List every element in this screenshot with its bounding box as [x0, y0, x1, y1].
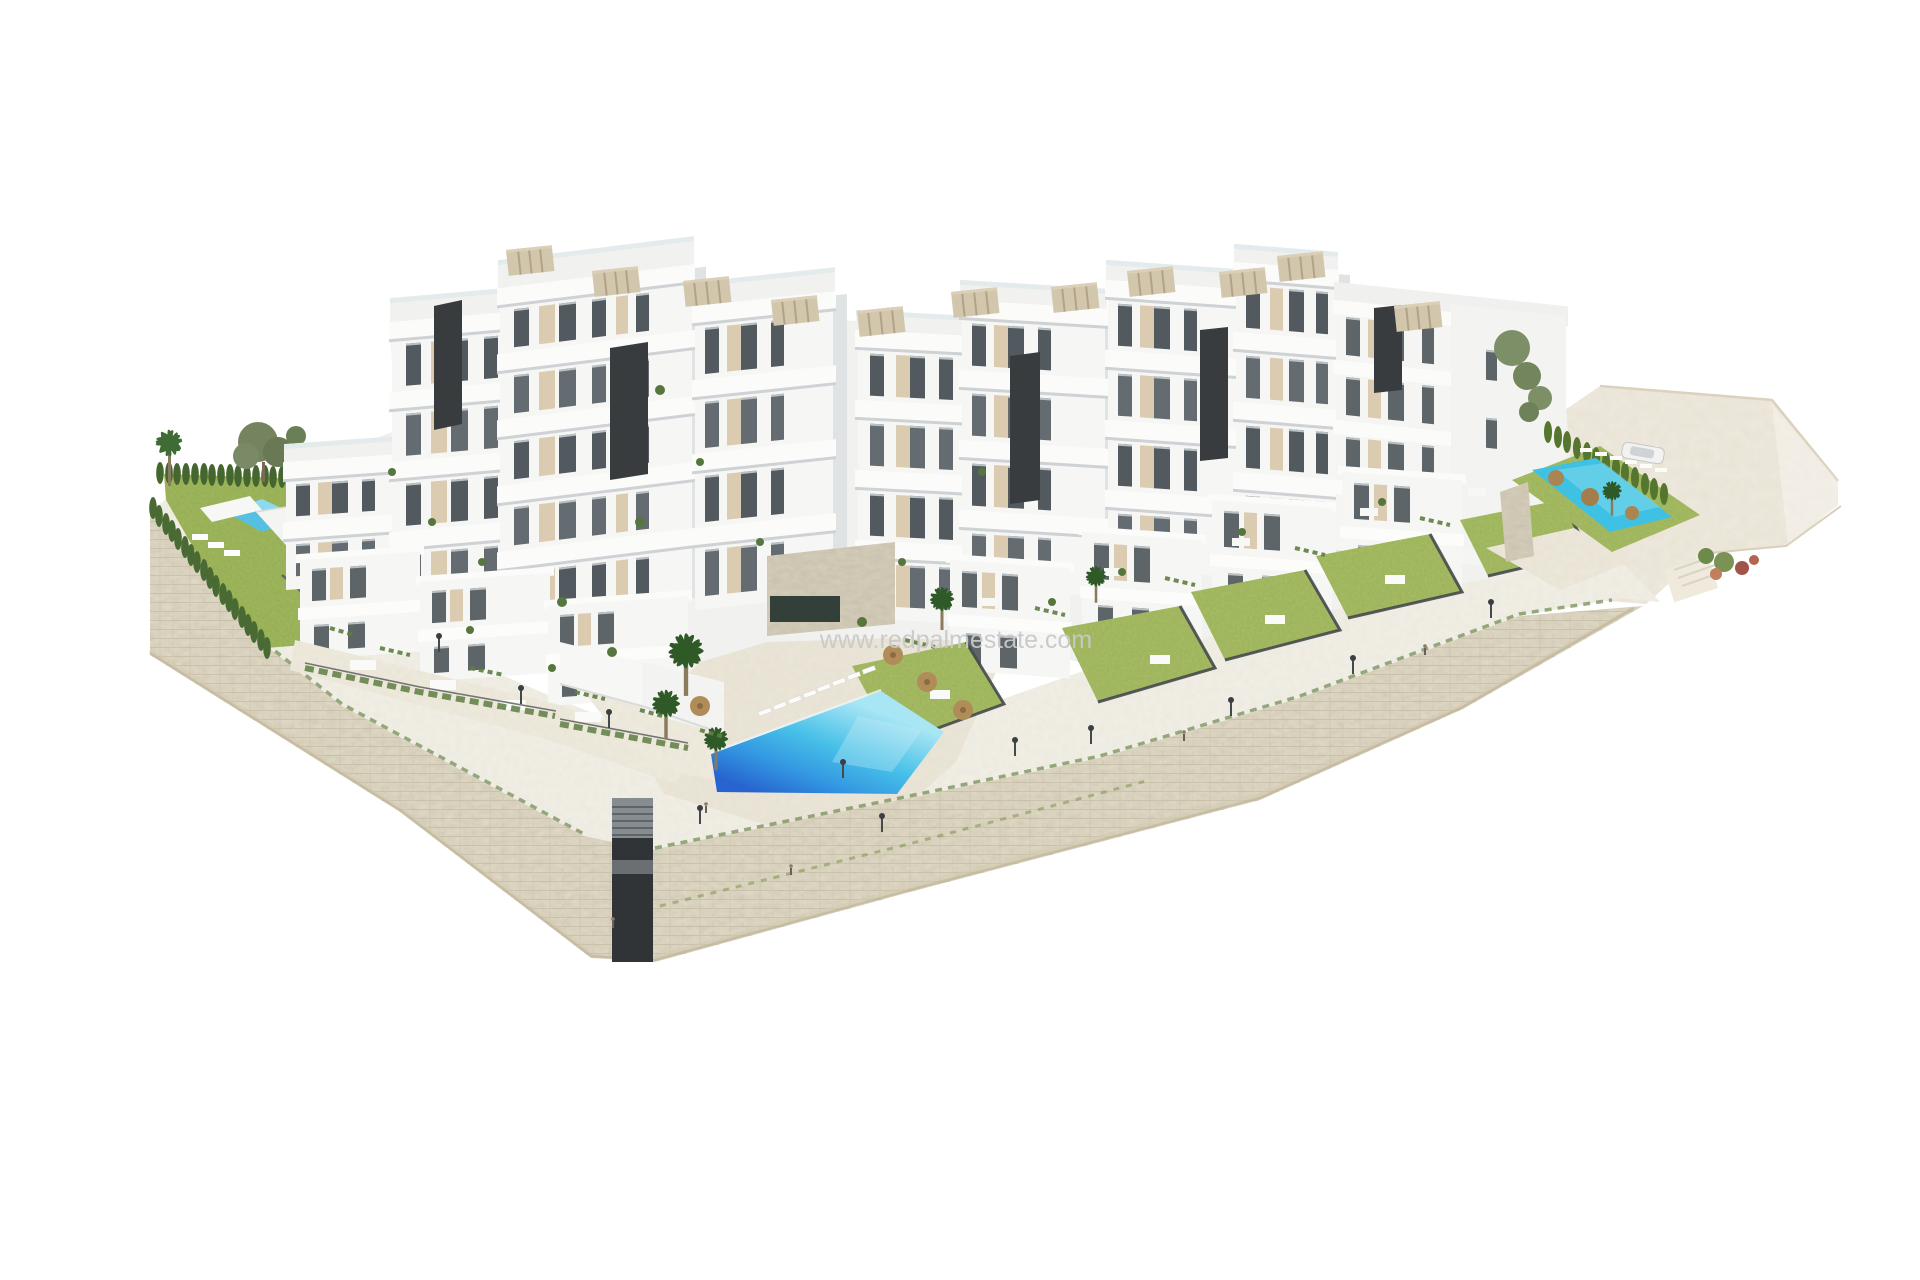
svg-text:www.redpalmestate.com: www.redpalmestate.com	[819, 626, 1092, 654]
